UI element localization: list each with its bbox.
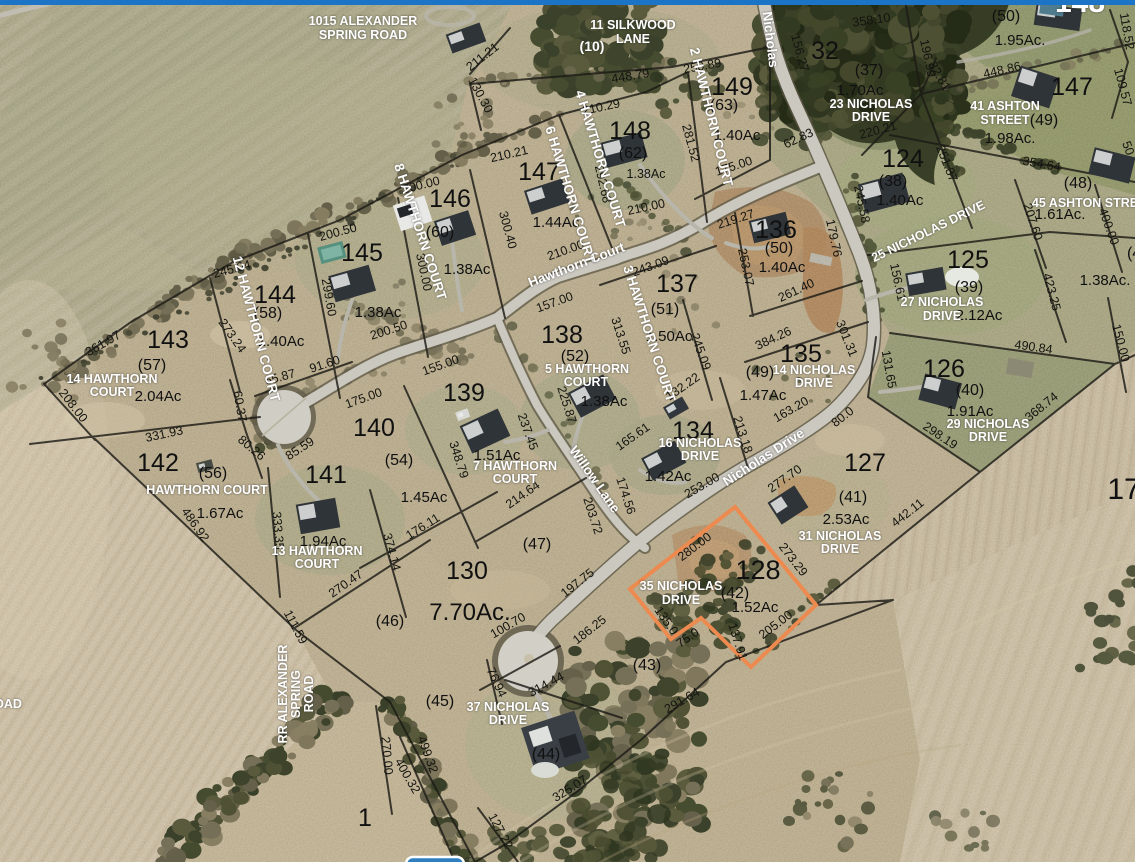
svg-text:(39): (39) (955, 279, 983, 296)
svg-text:124: 124 (882, 145, 924, 173)
svg-text:2.53Ac: 2.53Ac (823, 511, 870, 528)
svg-text:(37): (37) (855, 62, 883, 79)
svg-text:148: 148 (609, 117, 651, 145)
svg-text:(56): (56) (199, 465, 227, 482)
svg-text:DRIVE: DRIVE (681, 449, 719, 463)
svg-text:(48): (48) (1064, 175, 1092, 192)
svg-text:14 NICHOLAS: 14 NICHOLAS (773, 363, 856, 377)
svg-text:1.38Ac: 1.38Ac (581, 393, 628, 410)
svg-text:(50): (50) (765, 240, 793, 257)
svg-text:146: 146 (429, 185, 471, 213)
svg-text:1.47Ac: 1.47Ac (740, 387, 787, 404)
svg-text:1.38Ac: 1.38Ac (444, 261, 491, 278)
svg-text:(62): (62) (619, 145, 647, 162)
svg-text:1.52Ac: 1.52Ac (732, 599, 779, 616)
svg-text:1.38Ac.: 1.38Ac. (1080, 272, 1131, 289)
svg-text:128: 128 (735, 555, 780, 585)
svg-text:1.67Ac: 1.67Ac (197, 505, 244, 522)
svg-text:1.38Ac: 1.38Ac (355, 304, 402, 321)
svg-text:125: 125 (947, 246, 989, 274)
svg-text:142: 142 (137, 449, 179, 477)
svg-text:1.45Ac: 1.45Ac (401, 489, 448, 506)
svg-text:45 ASHTON STREET: 45 ASHTON STREET (1032, 196, 1135, 210)
svg-text:DRIVE: DRIVE (662, 593, 700, 607)
svg-text:37 NICHOLAS: 37 NICHOLAS (467, 700, 550, 714)
svg-text:DRIVE: DRIVE (489, 713, 527, 727)
svg-text:COURT: COURT (90, 385, 135, 399)
svg-text:1.95Ac.: 1.95Ac. (995, 32, 1046, 49)
svg-text:STREET: STREET (980, 113, 1030, 127)
svg-text:41 ASHTON: 41 ASHTON (970, 99, 1039, 113)
svg-text:(49): (49) (746, 364, 774, 381)
svg-text:1.98Ac.: 1.98Ac. (985, 130, 1036, 147)
svg-text:143: 143 (147, 326, 189, 354)
svg-text:(45): (45) (426, 693, 454, 710)
svg-text:(46): (46) (376, 613, 404, 630)
svg-text:(10): (10) (580, 38, 605, 54)
svg-text:(38): (38) (879, 173, 907, 190)
svg-text:COURT: COURT (564, 375, 609, 389)
svg-text:11 SILKWOOD: 11 SILKWOOD (590, 18, 675, 32)
svg-text:DRIVE: DRIVE (923, 309, 961, 323)
svg-text:31 NICHOLAS: 31 NICHOLAS (799, 529, 882, 543)
svg-text:145: 145 (341, 239, 383, 267)
svg-text:7.70Ac.: 7.70Ac. (429, 599, 510, 626)
svg-text:DRIVE: DRIVE (852, 110, 890, 124)
svg-text:27 NICHOLAS: 27 NICHOLAS (901, 295, 984, 309)
svg-text:16 NICHOLAS: 16 NICHOLAS (659, 436, 742, 450)
svg-text:23 NICHOLAS: 23 NICHOLAS (830, 97, 913, 111)
svg-text:SPRING ROAD: SPRING ROAD (319, 28, 407, 42)
svg-text:DRIVE: DRIVE (821, 542, 859, 556)
svg-text:138: 138 (541, 321, 583, 349)
svg-text:COURT: COURT (295, 557, 340, 571)
svg-text:1.40Ac: 1.40Ac (759, 259, 806, 276)
svg-text:5 HAWTHORN: 5 HAWTHORN (545, 362, 629, 376)
svg-text:139: 139 (443, 379, 485, 407)
svg-text:2.04Ac: 2.04Ac (135, 388, 182, 405)
svg-text:1.40Ac: 1.40Ac (877, 192, 924, 209)
svg-text:126: 126 (923, 355, 965, 383)
svg-text:7 HAWTHORN: 7 HAWTHORN (473, 459, 557, 473)
svg-text:COURT: COURT (493, 472, 538, 486)
svg-text:(47: (47 (1127, 245, 1135, 262)
svg-text:13 HAWTHORN: 13 HAWTHORN (272, 544, 363, 558)
svg-text:32: 32 (811, 37, 839, 65)
svg-text:1.42Ac: 1.42Ac (645, 468, 692, 485)
svg-text:(40): (40) (956, 382, 984, 399)
svg-text:1015 ALEXANDER: 1015 ALEXANDER (309, 14, 418, 28)
svg-text:140: 140 (353, 414, 395, 442)
svg-text:1.38Ac: 1.38Ac (627, 167, 666, 181)
svg-text:(41): (41) (839, 489, 867, 506)
svg-text:(51): (51) (651, 301, 679, 318)
svg-text:(54): (54) (385, 452, 413, 469)
svg-text:DRIVE: DRIVE (795, 376, 833, 390)
svg-text:(49): (49) (1030, 112, 1058, 129)
svg-text:1: 1 (358, 804, 372, 832)
svg-text:LANE: LANE (616, 32, 650, 46)
svg-text:RR ALEXANDER: RR ALEXANDER (276, 645, 290, 744)
svg-text:137: 137 (656, 270, 698, 298)
svg-text:127: 127 (844, 449, 886, 477)
svg-text:SPRING: SPRING (289, 670, 303, 718)
svg-text:2.12Ac: 2.12Ac (956, 307, 1003, 324)
svg-text:141: 141 (305, 461, 347, 489)
svg-text:14 HAWTHORN: 14 HAWTHORN (67, 372, 158, 386)
svg-text:130: 130 (446, 557, 488, 585)
svg-text:DRIVE: DRIVE (969, 430, 1007, 444)
svg-text:(44): (44) (532, 746, 560, 763)
svg-text:29 NICHOLAS: 29 NICHOLAS (947, 417, 1030, 431)
svg-text:17: 17 (1107, 473, 1135, 506)
svg-text:ROAD: ROAD (302, 676, 316, 713)
svg-text:(50): (50) (992, 8, 1020, 25)
svg-text:HAWTHORN COURT: HAWTHORN COURT (146, 483, 268, 497)
svg-text:147: 147 (1051, 73, 1093, 101)
svg-text:OAD: OAD (0, 697, 22, 711)
svg-text:(47): (47) (523, 536, 551, 553)
svg-text:35 NICHOLAS: 35 NICHOLAS (640, 579, 723, 593)
svg-text:(43): (43) (633, 657, 661, 674)
